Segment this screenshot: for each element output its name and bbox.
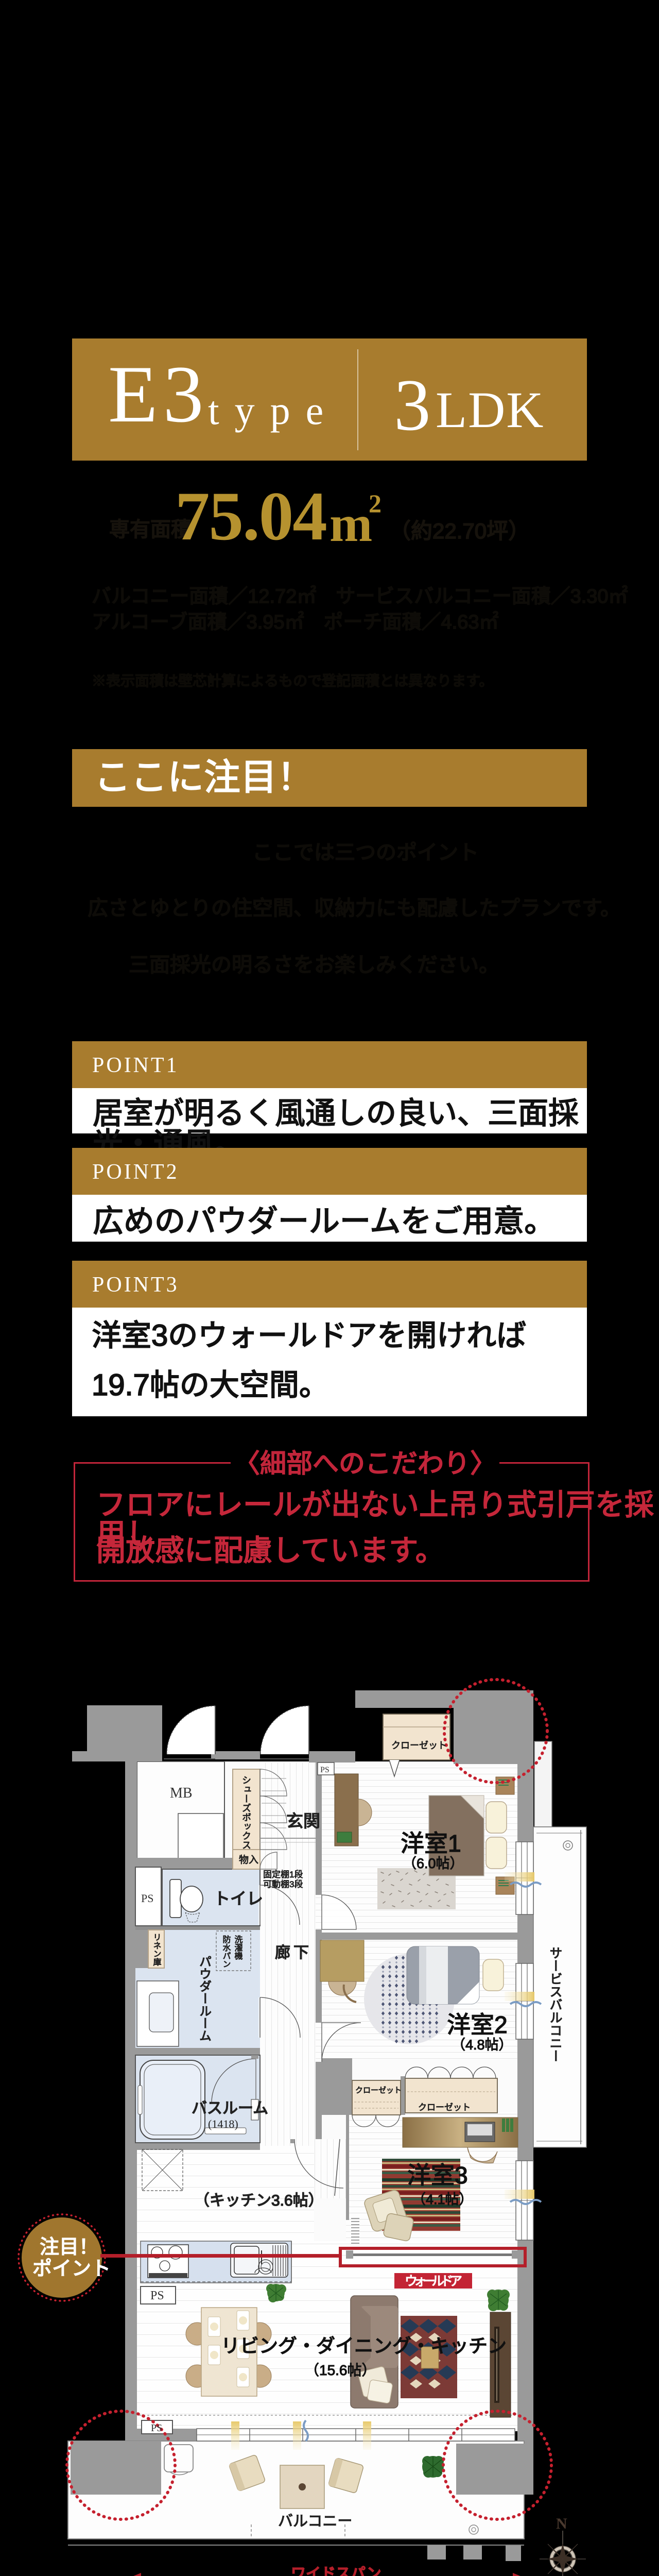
svg-text:トイレ: トイレ: [214, 1889, 263, 1908]
svg-text:防水パン: 防水パン: [221, 1935, 231, 1968]
svg-text:リネン庫: リネン庫: [152, 1933, 162, 1966]
svg-text:玄関: 玄関: [286, 1811, 320, 1831]
svg-text:洋室3: 洋室3: [407, 2162, 468, 2189]
svg-text:サービスバルコニー: サービスバルコニー: [548, 1946, 562, 2062]
svg-text:洋室2: 洋室2: [447, 2011, 508, 2038]
svg-text:（6.0帖）: （6.0帖）: [403, 1856, 464, 1871]
svg-text:シューズボックス: シューズボックス: [241, 1775, 251, 1850]
svg-text:N: N: [556, 2515, 567, 2532]
svg-text:PS: PS: [150, 2289, 164, 2302]
svg-text:クローゼット: クローゼット: [355, 2086, 402, 2095]
svg-text:バスルーム: バスルーム: [192, 2100, 268, 2117]
svg-text:リビング・ダイニング・キッチン: リビング・ダイニング・キッチン: [221, 2335, 507, 2357]
svg-text:クローゼット: クローゼット: [418, 2103, 471, 2112]
svg-text:洋室1: 洋室1: [401, 1830, 461, 1857]
svg-text:可動棚3段: 可動棚3段: [263, 1879, 303, 1889]
svg-text:MB: MB: [170, 1785, 193, 1801]
svg-text:PS: PS: [320, 1766, 329, 1774]
svg-text:パウダールーム: パウダールーム: [197, 1955, 211, 2042]
svg-text:（4.8帖）: （4.8帖）: [452, 2037, 513, 2053]
svg-text:ウォールドア: ウォールドア: [405, 2274, 462, 2289]
svg-text:ワイドスパン: ワイドスパン: [291, 2566, 381, 2576]
svg-text:(1418): (1418): [208, 2117, 238, 2130]
svg-text:PS: PS: [151, 2422, 162, 2434]
svg-text:PS: PS: [141, 1892, 153, 1905]
svg-text:固定棚1段: 固定棚1段: [263, 1870, 303, 1879]
svg-text:バルコニー: バルコニー: [278, 2513, 352, 2530]
svg-text:（4.1帖）: （4.1帖）: [412, 2192, 473, 2207]
svg-text:（15.6帖）: （15.6帖）: [305, 2362, 376, 2378]
svg-text:廊下: 廊下: [275, 1944, 312, 1961]
svg-text:注目！: 注目！: [40, 2236, 98, 2258]
svg-text:洗濯機: 洗濯機: [233, 1935, 243, 1960]
svg-text:クローゼット: クローゼット: [391, 1740, 447, 1751]
svg-text:（キッチン3.6帖）: （キッチン3.6帖）: [194, 2192, 324, 2209]
svg-text:物入: 物入: [239, 1854, 258, 1866]
svg-text:ポイント: ポイント: [32, 2258, 111, 2280]
